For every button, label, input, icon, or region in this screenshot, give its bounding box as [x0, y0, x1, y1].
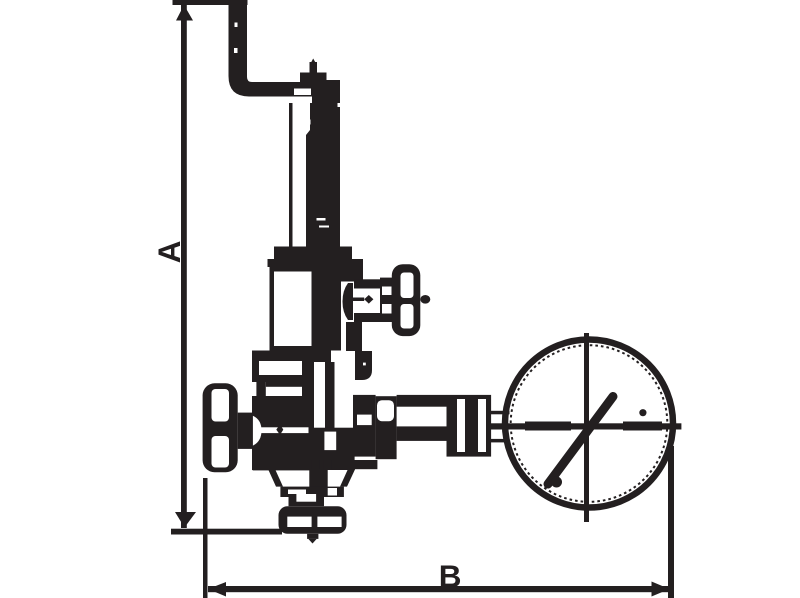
svg-text:B: B — [439, 558, 462, 594]
svg-text:A: A — [151, 240, 187, 263]
